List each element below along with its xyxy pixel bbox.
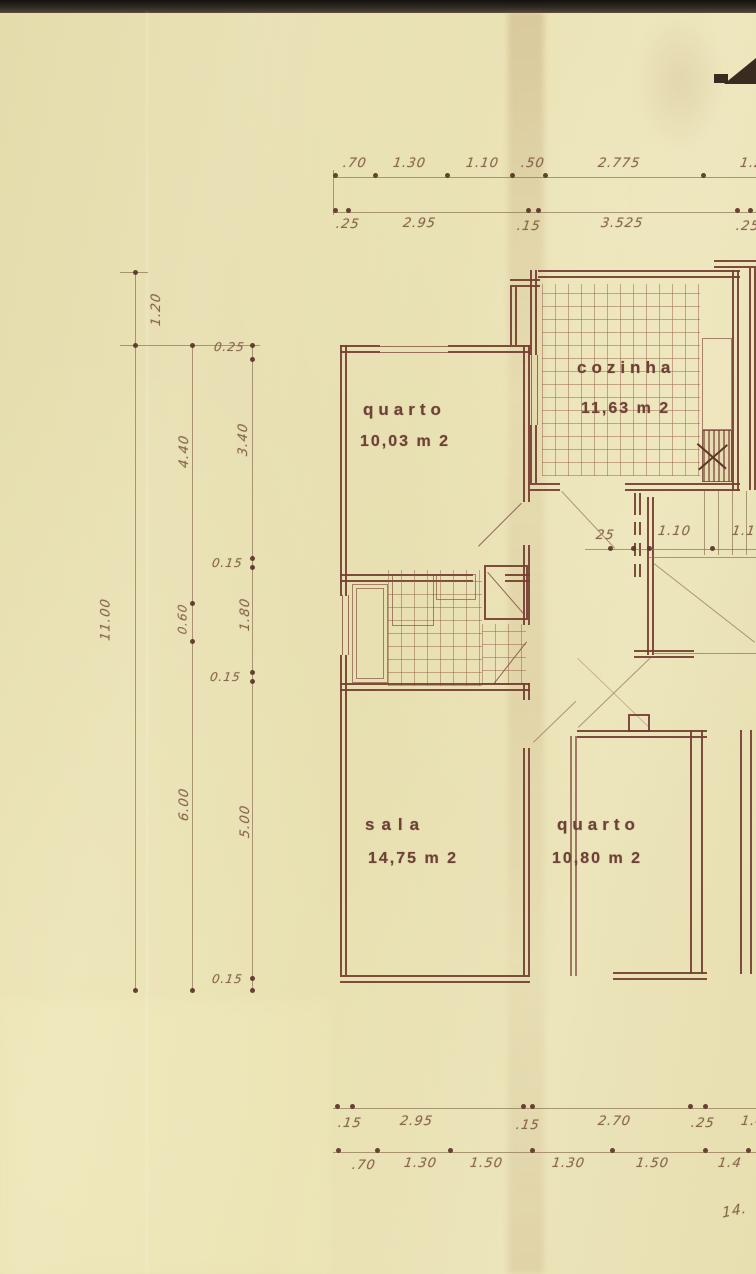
- wall: [448, 345, 530, 353]
- wall: [523, 748, 530, 975]
- stair-tread: [718, 491, 719, 555]
- wall: [530, 425, 537, 483]
- left-crease: [146, 12, 148, 1274]
- wall: [732, 270, 739, 491]
- dimension-tick: [735, 208, 740, 213]
- bottom-left-light: [0, 1000, 330, 1274]
- wall: [523, 683, 530, 700]
- dimension-tick: [250, 670, 255, 675]
- wall: [749, 268, 756, 490]
- dimension-label-partial: 14.: [722, 1200, 747, 1221]
- dimension-label: 1.4: [717, 1156, 743, 1171]
- dimension-tick: [647, 546, 652, 551]
- corridor-line: [649, 557, 756, 558]
- wall: [647, 497, 654, 655]
- dimension-label: 25: [595, 528, 616, 543]
- dimension-tick: [250, 556, 255, 561]
- dimension-label: 1.50: [635, 1156, 670, 1171]
- dimension-label: .15: [516, 219, 542, 234]
- dimension-tick: [445, 173, 450, 178]
- room-label-quarto1: quarto: [363, 400, 446, 420]
- wall: [530, 270, 537, 355]
- dimension-label: 0.60: [175, 603, 189, 636]
- dimension-label: 1.10: [465, 156, 500, 171]
- dimension-tick: [536, 208, 541, 213]
- wall: [530, 483, 560, 491]
- kitchen-counter: [702, 338, 732, 430]
- wall: [340, 582, 347, 596]
- north-arrow-tail: [714, 74, 728, 83]
- dimension-label: .25: [690, 1116, 716, 1131]
- north-arrow-icon: [724, 58, 756, 84]
- scan-edge-strip: [0, 0, 756, 13]
- dimension-label: .70: [342, 156, 368, 171]
- wall-dashed: [634, 564, 641, 577]
- dimension-label: 2.95: [402, 216, 437, 231]
- dimension-tick: [710, 546, 715, 551]
- dimension-label: .15: [337, 1116, 363, 1131]
- dimension-tick: [526, 208, 531, 213]
- window: [342, 595, 343, 655]
- wall: [634, 650, 694, 658]
- room-label-sala: sala: [365, 815, 426, 835]
- dimension-tick: [350, 1104, 355, 1109]
- dimension-label: 2.95: [399, 1114, 434, 1129]
- dimension-tick: [190, 601, 195, 606]
- window: [348, 595, 349, 655]
- dimension-tick: [133, 343, 138, 348]
- dimension-tick: [250, 679, 255, 684]
- dimension-label: 4.40: [177, 434, 192, 469]
- dimension-label: 1.80: [238, 597, 253, 632]
- dimension-label: 0.25: [213, 340, 246, 354]
- wall: [510, 287, 517, 345]
- dimension-label: .70: [351, 1158, 377, 1173]
- top-right-stain: [635, 12, 725, 152]
- dimension-label: 5.00: [238, 804, 253, 839]
- wall: [714, 260, 756, 268]
- dimension-label: 0.15: [209, 670, 242, 684]
- floor-plan-sheet: .70 1.30 1.10 .50 2.775 1.2 .25 2.95 .15…: [0, 0, 756, 1274]
- dimension-tick: [250, 988, 255, 993]
- dimension-tick: [133, 988, 138, 993]
- room-area-quarto2: 10,80 m 2: [552, 850, 642, 868]
- dimension-line: [333, 1152, 756, 1153]
- dimension-tick: [190, 988, 195, 993]
- wall: [613, 972, 707, 980]
- wall: [340, 683, 530, 691]
- dimension-tick: [133, 270, 138, 275]
- dimension-label: 1.20: [149, 292, 164, 327]
- dimension-tick: [703, 1148, 708, 1153]
- dimension-tick: [250, 357, 255, 362]
- dimension-label: 1.10: [657, 524, 692, 539]
- dimension-tick: [631, 546, 636, 551]
- dimension-label: 3.40: [236, 422, 251, 457]
- dimension-label: 0.15: [211, 972, 244, 986]
- dimension-label: 1.30: [551, 1156, 586, 1171]
- wall: [340, 345, 380, 353]
- kitchen-sink: [702, 430, 732, 482]
- wall: [625, 483, 740, 491]
- dimension-line: [135, 272, 136, 990]
- dimension-line: [192, 345, 193, 990]
- wall: [340, 345, 347, 582]
- dimension-label: 2.775: [597, 156, 641, 171]
- corridor-line: [653, 653, 756, 654]
- dimension-label: 0.15: [211, 556, 244, 570]
- wall: [538, 270, 740, 278]
- window: [378, 346, 448, 347]
- wall-dashed: [634, 522, 641, 535]
- door-swing: [478, 503, 522, 547]
- dimension-label: .25: [335, 217, 361, 232]
- stair-tread: [746, 491, 747, 555]
- dimension-tick: [608, 546, 613, 551]
- stair-tread: [732, 491, 733, 555]
- wall: [690, 730, 703, 974]
- dimension-tick: [250, 565, 255, 570]
- dimension-tick: [448, 1148, 453, 1153]
- wall: [340, 655, 347, 975]
- dimension-label: 6.00: [177, 787, 192, 822]
- dimension-label: .15: [515, 1118, 541, 1133]
- dimension-label: 1.4: [740, 1114, 756, 1129]
- dimension-tick: [336, 1148, 341, 1153]
- dimension-tick: [335, 1104, 340, 1109]
- dimension-tick: [530, 1148, 535, 1153]
- dimension-tick: [543, 173, 548, 178]
- dimension-tick: [333, 208, 338, 213]
- window: [378, 352, 448, 353]
- dimension-tick: [373, 173, 378, 178]
- dimension-label: 2.70: [597, 1114, 632, 1129]
- wall: [740, 730, 752, 974]
- window: [531, 355, 532, 425]
- room-area-sala: 14,75 m 2: [368, 850, 458, 868]
- room-area-quarto1: 10,03 m 2: [360, 433, 450, 451]
- dimension-tick: [375, 1148, 380, 1153]
- room-label-cozinha: cozinha: [577, 358, 675, 378]
- wall: [634, 493, 641, 515]
- dimension-tick: [748, 208, 753, 213]
- dimension-label: 11.00: [99, 597, 114, 641]
- dimension-line: [333, 212, 756, 213]
- dimension-tick: [250, 343, 255, 348]
- bath-fixture: [392, 574, 434, 626]
- dimension-label: 1.30: [403, 1156, 438, 1171]
- dimension-tick: [190, 343, 195, 348]
- dimension-tick: [521, 1104, 526, 1109]
- dimension-label: 1.2: [739, 156, 756, 171]
- tile-grid-cozinha: [542, 284, 700, 476]
- bath-fixture: [436, 574, 476, 600]
- room-label-quarto2: quarto: [557, 815, 640, 835]
- stair-diagonal: [653, 563, 754, 643]
- wall: [340, 975, 530, 983]
- wall: [523, 345, 530, 502]
- dimension-line: [252, 345, 253, 990]
- dimension-label: 1.30: [392, 156, 427, 171]
- window: [537, 355, 538, 425]
- tile-grid-bathroom: [482, 624, 526, 684]
- dimension-label: .50: [520, 156, 546, 171]
- dimension-tick: [510, 173, 515, 178]
- dimension-tick: [688, 1104, 693, 1109]
- dimension-tick: [333, 173, 338, 178]
- dimension-tick: [250, 976, 255, 981]
- bathtub-inner: [356, 588, 384, 679]
- dimension-tick: [746, 1148, 751, 1153]
- dimension-line: [333, 1108, 756, 1109]
- wall-pier: [628, 714, 650, 732]
- dimension-tick: [701, 173, 706, 178]
- stair-tread: [704, 491, 705, 555]
- dimension-tick: [610, 1148, 615, 1153]
- dimension-label: 3.525: [600, 216, 644, 231]
- dimension-label: 1.1: [731, 524, 756, 539]
- dimension-label: .25: [735, 219, 756, 234]
- dimension-tick: [703, 1104, 708, 1109]
- room-area-cozinha: 11,63 m 2: [581, 400, 670, 418]
- dimension-tick: [190, 639, 195, 644]
- dimension-tick: [346, 208, 351, 213]
- dimension-label: 1.50: [469, 1156, 504, 1171]
- dimension-tick: [530, 1104, 535, 1109]
